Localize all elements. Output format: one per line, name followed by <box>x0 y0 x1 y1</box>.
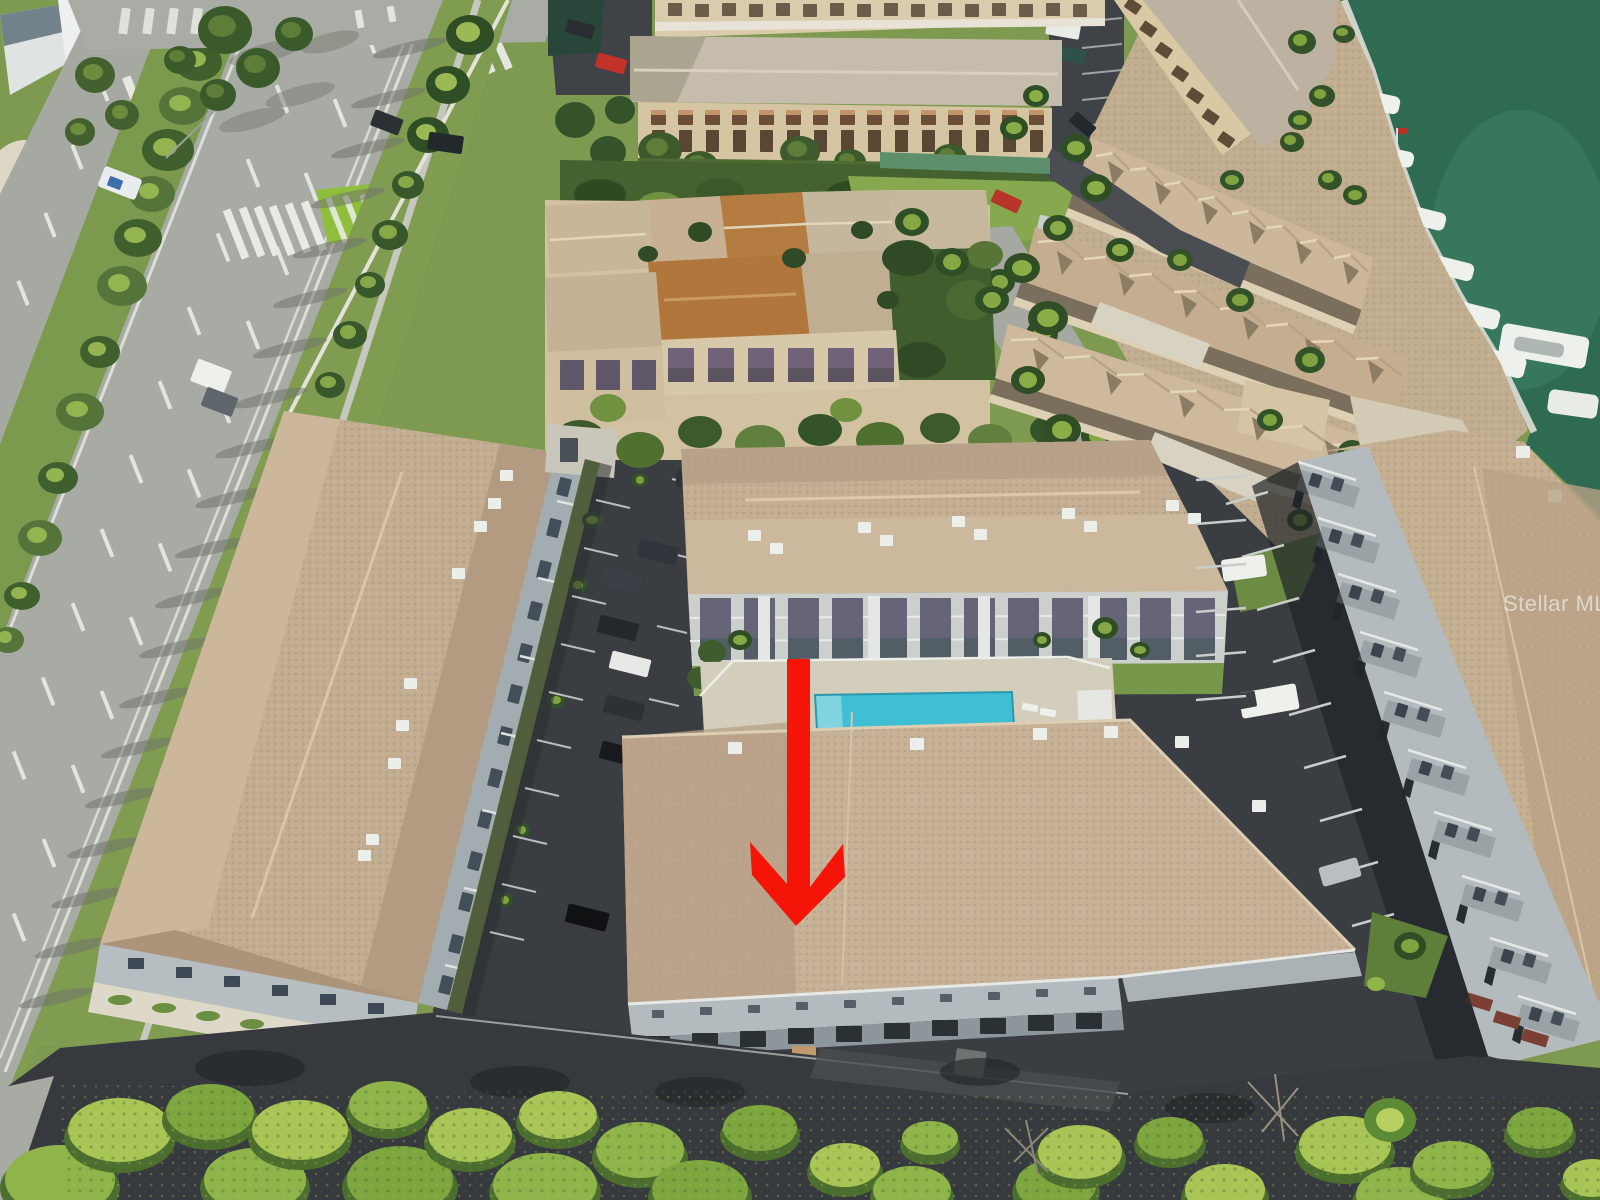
svg-text:Stellar MLS: Stellar MLS <box>1503 591 1600 616</box>
